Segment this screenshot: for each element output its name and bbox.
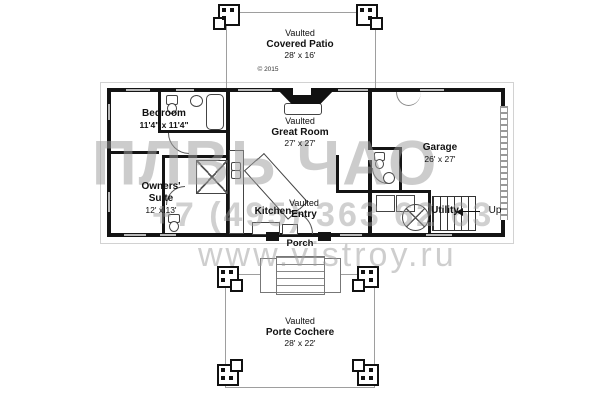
bedroom-dims: 11'4" x 11'4" [112,120,216,130]
garage-door [500,106,508,220]
porte-cochere-label: Vaulted Porte Cochere 28' x 22' [230,316,370,348]
great-room-dims: 27' x 27' [240,138,360,148]
window-bottom-1 [124,234,146,236]
bedroom-label: Bedroom 11'4" x 11'4" [112,108,216,130]
owners-suite-name2: Suite [114,193,208,205]
owners-suite-dims: 12' x 13' [114,205,208,215]
window-top-1 [126,89,150,91]
up-label: Up [482,205,508,217]
great-room-label: Vaulted Great Room 27' x 27' [240,116,360,148]
porch-label: Porch [274,238,326,249]
covered-patio-label: Vaulted Covered Patio 28' x 16' [230,28,370,60]
covered-patio-name: Covered Patio [230,39,370,51]
garage-name: Garage [392,142,488,154]
utility-label: Utility [418,205,472,217]
bedroom-name: Bedroom [112,108,216,120]
owners-suite-name1: Owners' [114,181,208,193]
bath-sink-1 [190,95,203,107]
fireplace-hearth [284,103,322,115]
entry-name: Entry [272,209,336,221]
owners-suite-label: Owners' Suite 12' x 13' [114,181,208,215]
covered-patio-prefix: Vaulted [230,28,370,39]
garage-dims: 26' x 27' [392,154,488,164]
window-top-2 [176,89,194,91]
utility-name: Utility [418,205,472,217]
entry-prefix: Vaulted [272,198,336,209]
garage-label: Garage 26' x 27' [392,142,488,164]
porte-cochere-dims: 28' x 22' [230,338,370,348]
porch-name: Porch [274,238,326,249]
patio-door-left [238,89,272,91]
great-room-prefix: Vaulted [240,116,360,127]
great-room-name: Great Room [240,127,360,139]
porte-cochere-prefix: Vaulted [230,316,370,327]
outer-wall-right-bottom [501,220,505,237]
patio-door-right [338,89,368,91]
porte-cochere-name: Porte Cochere [230,327,370,339]
window-top-3 [420,89,444,91]
covered-patio-dims: 28' x 16' [230,50,370,60]
entry-label: Vaulted Entry [272,198,336,220]
window-left-1 [108,104,110,120]
floor-plan: Vaulted Covered Patio 28' x 16' © 2015 [0,0,600,400]
copyright-text: © 2015 [246,66,290,74]
watermark-site: www.vistroy.ru [198,236,457,275]
fireplace-notch [293,88,311,95]
outer-wall-right-top [501,88,505,106]
